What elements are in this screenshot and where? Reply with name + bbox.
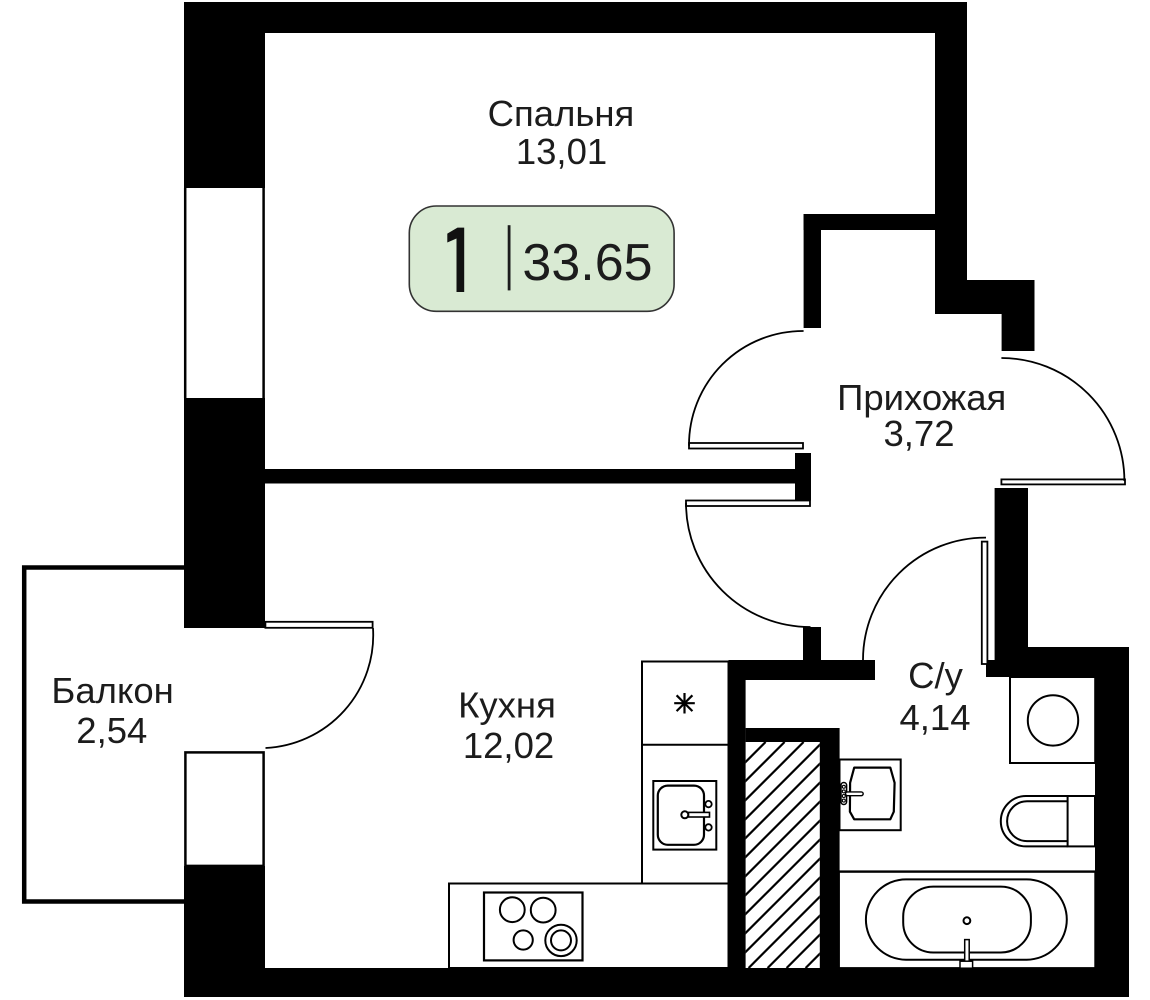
svg-text:4,14: 4,14 (899, 697, 970, 738)
svg-text:12,02: 12,02 (463, 725, 554, 766)
svg-text:Спальня: Спальня (488, 93, 635, 134)
svg-text:33.65: 33.65 (522, 234, 652, 292)
svg-text:2,54: 2,54 (76, 710, 147, 751)
svg-text:С/у: С/у (908, 655, 964, 696)
svg-text:Кухня: Кухня (458, 685, 556, 726)
svg-text:Прихожая: Прихожая (837, 377, 1006, 418)
svg-text:13,01: 13,01 (516, 131, 607, 172)
svg-text:Балкон: Балкон (51, 670, 173, 711)
svg-text:3,72: 3,72 (883, 413, 954, 454)
